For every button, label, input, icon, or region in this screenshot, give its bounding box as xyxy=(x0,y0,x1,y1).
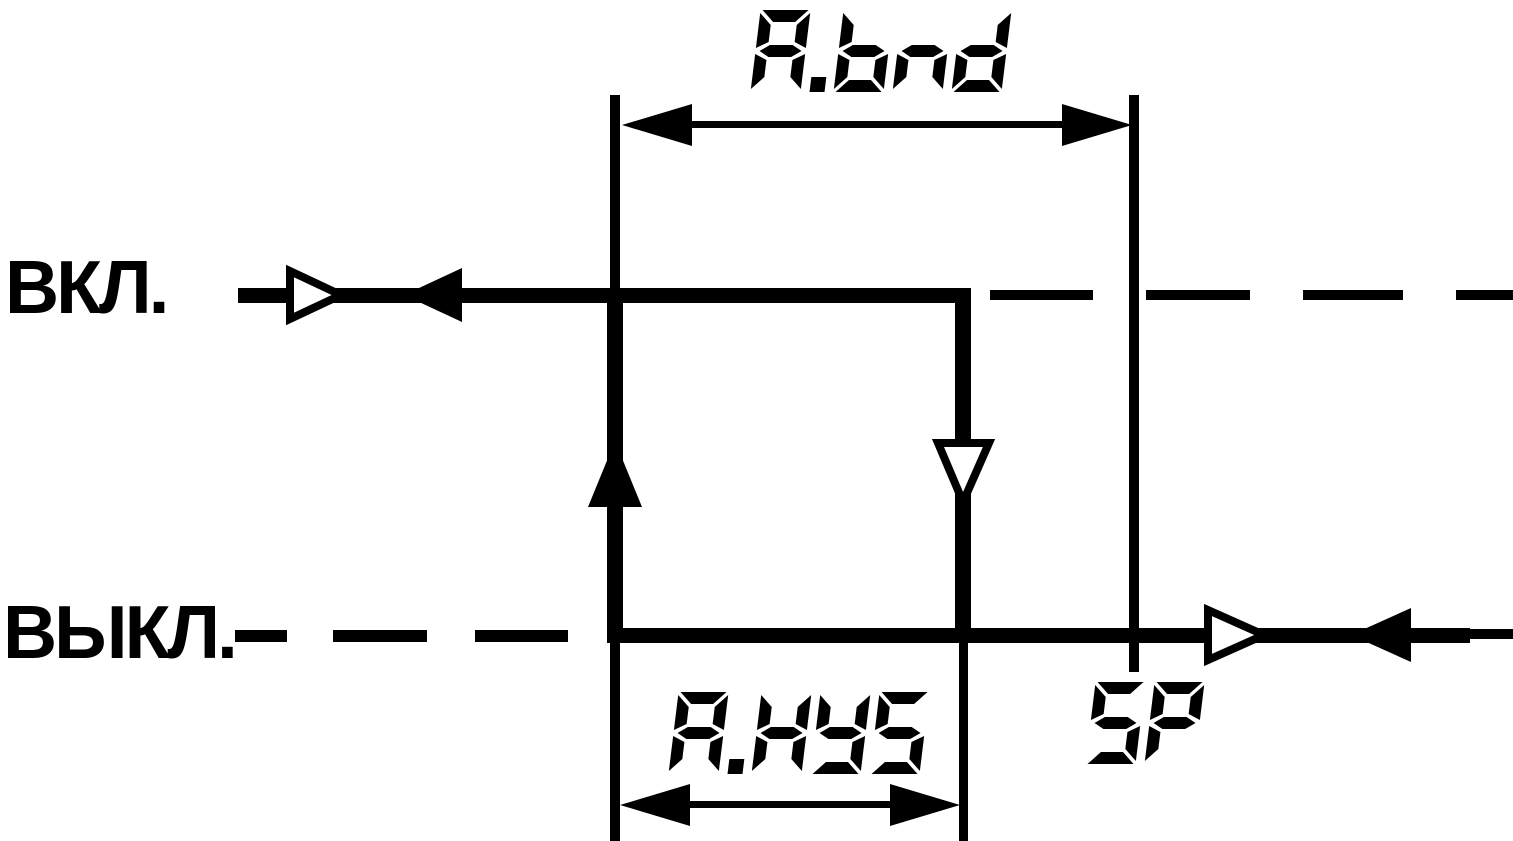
seven-segment-char xyxy=(870,692,930,774)
relay-hysteresis-diagram: ВКЛ. ВЫКЛ. xyxy=(0,0,1513,841)
seven-segment-char xyxy=(810,77,827,92)
off-level-line-thin-end xyxy=(1470,629,1513,639)
seven-segment-char xyxy=(752,695,811,771)
on-dash xyxy=(990,290,1093,300)
right-direction-open-arrow xyxy=(1208,610,1264,660)
hys-arrow-right-head xyxy=(890,784,960,826)
seven-segment-char xyxy=(728,759,745,774)
seven-segment-char xyxy=(811,695,871,774)
hysteresis-right-boundary-line xyxy=(959,643,968,841)
setpoint-line xyxy=(1129,95,1139,672)
off-level-line xyxy=(607,628,1470,643)
band-arrow-left-head xyxy=(622,104,692,146)
seven-segment-char xyxy=(751,10,811,89)
off-level-label: ВЫКЛ. xyxy=(3,590,235,674)
band-dimension-arrow xyxy=(622,104,1132,146)
hysteresis-dimension-arrow xyxy=(620,784,960,826)
on-dash xyxy=(1303,290,1403,300)
on-level-dashed-line xyxy=(990,290,1513,300)
on-dash xyxy=(1456,290,1513,300)
right-direction-open-arrow xyxy=(290,271,341,319)
seven-segment-char xyxy=(669,692,729,771)
seven-segment-char xyxy=(893,45,948,89)
seven-segment-char xyxy=(952,13,1012,92)
on-level-label: ВКЛ. xyxy=(5,245,166,329)
off-dash xyxy=(235,630,287,642)
seven-segment-char xyxy=(1086,682,1146,764)
off-dash xyxy=(475,630,568,642)
on-dash xyxy=(1146,290,1250,300)
band-arrow-right-head xyxy=(1062,104,1132,146)
switch-on-up-arrow xyxy=(588,441,642,507)
seven-segment-char xyxy=(1145,682,1205,761)
seven-segment-char xyxy=(834,13,894,92)
band-arrow-shaft xyxy=(655,121,1100,128)
setpoint-parameter-label xyxy=(1086,682,1205,764)
hysteresis-parameter-label xyxy=(669,692,930,774)
left-direction-filled-arrow xyxy=(404,268,462,322)
off-dash xyxy=(333,630,427,642)
hys-arrow-left-head xyxy=(620,784,690,826)
hys-arrow-shaft xyxy=(660,801,920,808)
diagram-canvas: ВКЛ. ВЫКЛ. xyxy=(0,0,1513,841)
switch-off-down-arrow xyxy=(938,443,989,502)
left-direction-filled-arrow xyxy=(1351,608,1411,662)
off-level-dashed-line xyxy=(235,630,568,642)
band-parameter-label xyxy=(751,10,1011,92)
